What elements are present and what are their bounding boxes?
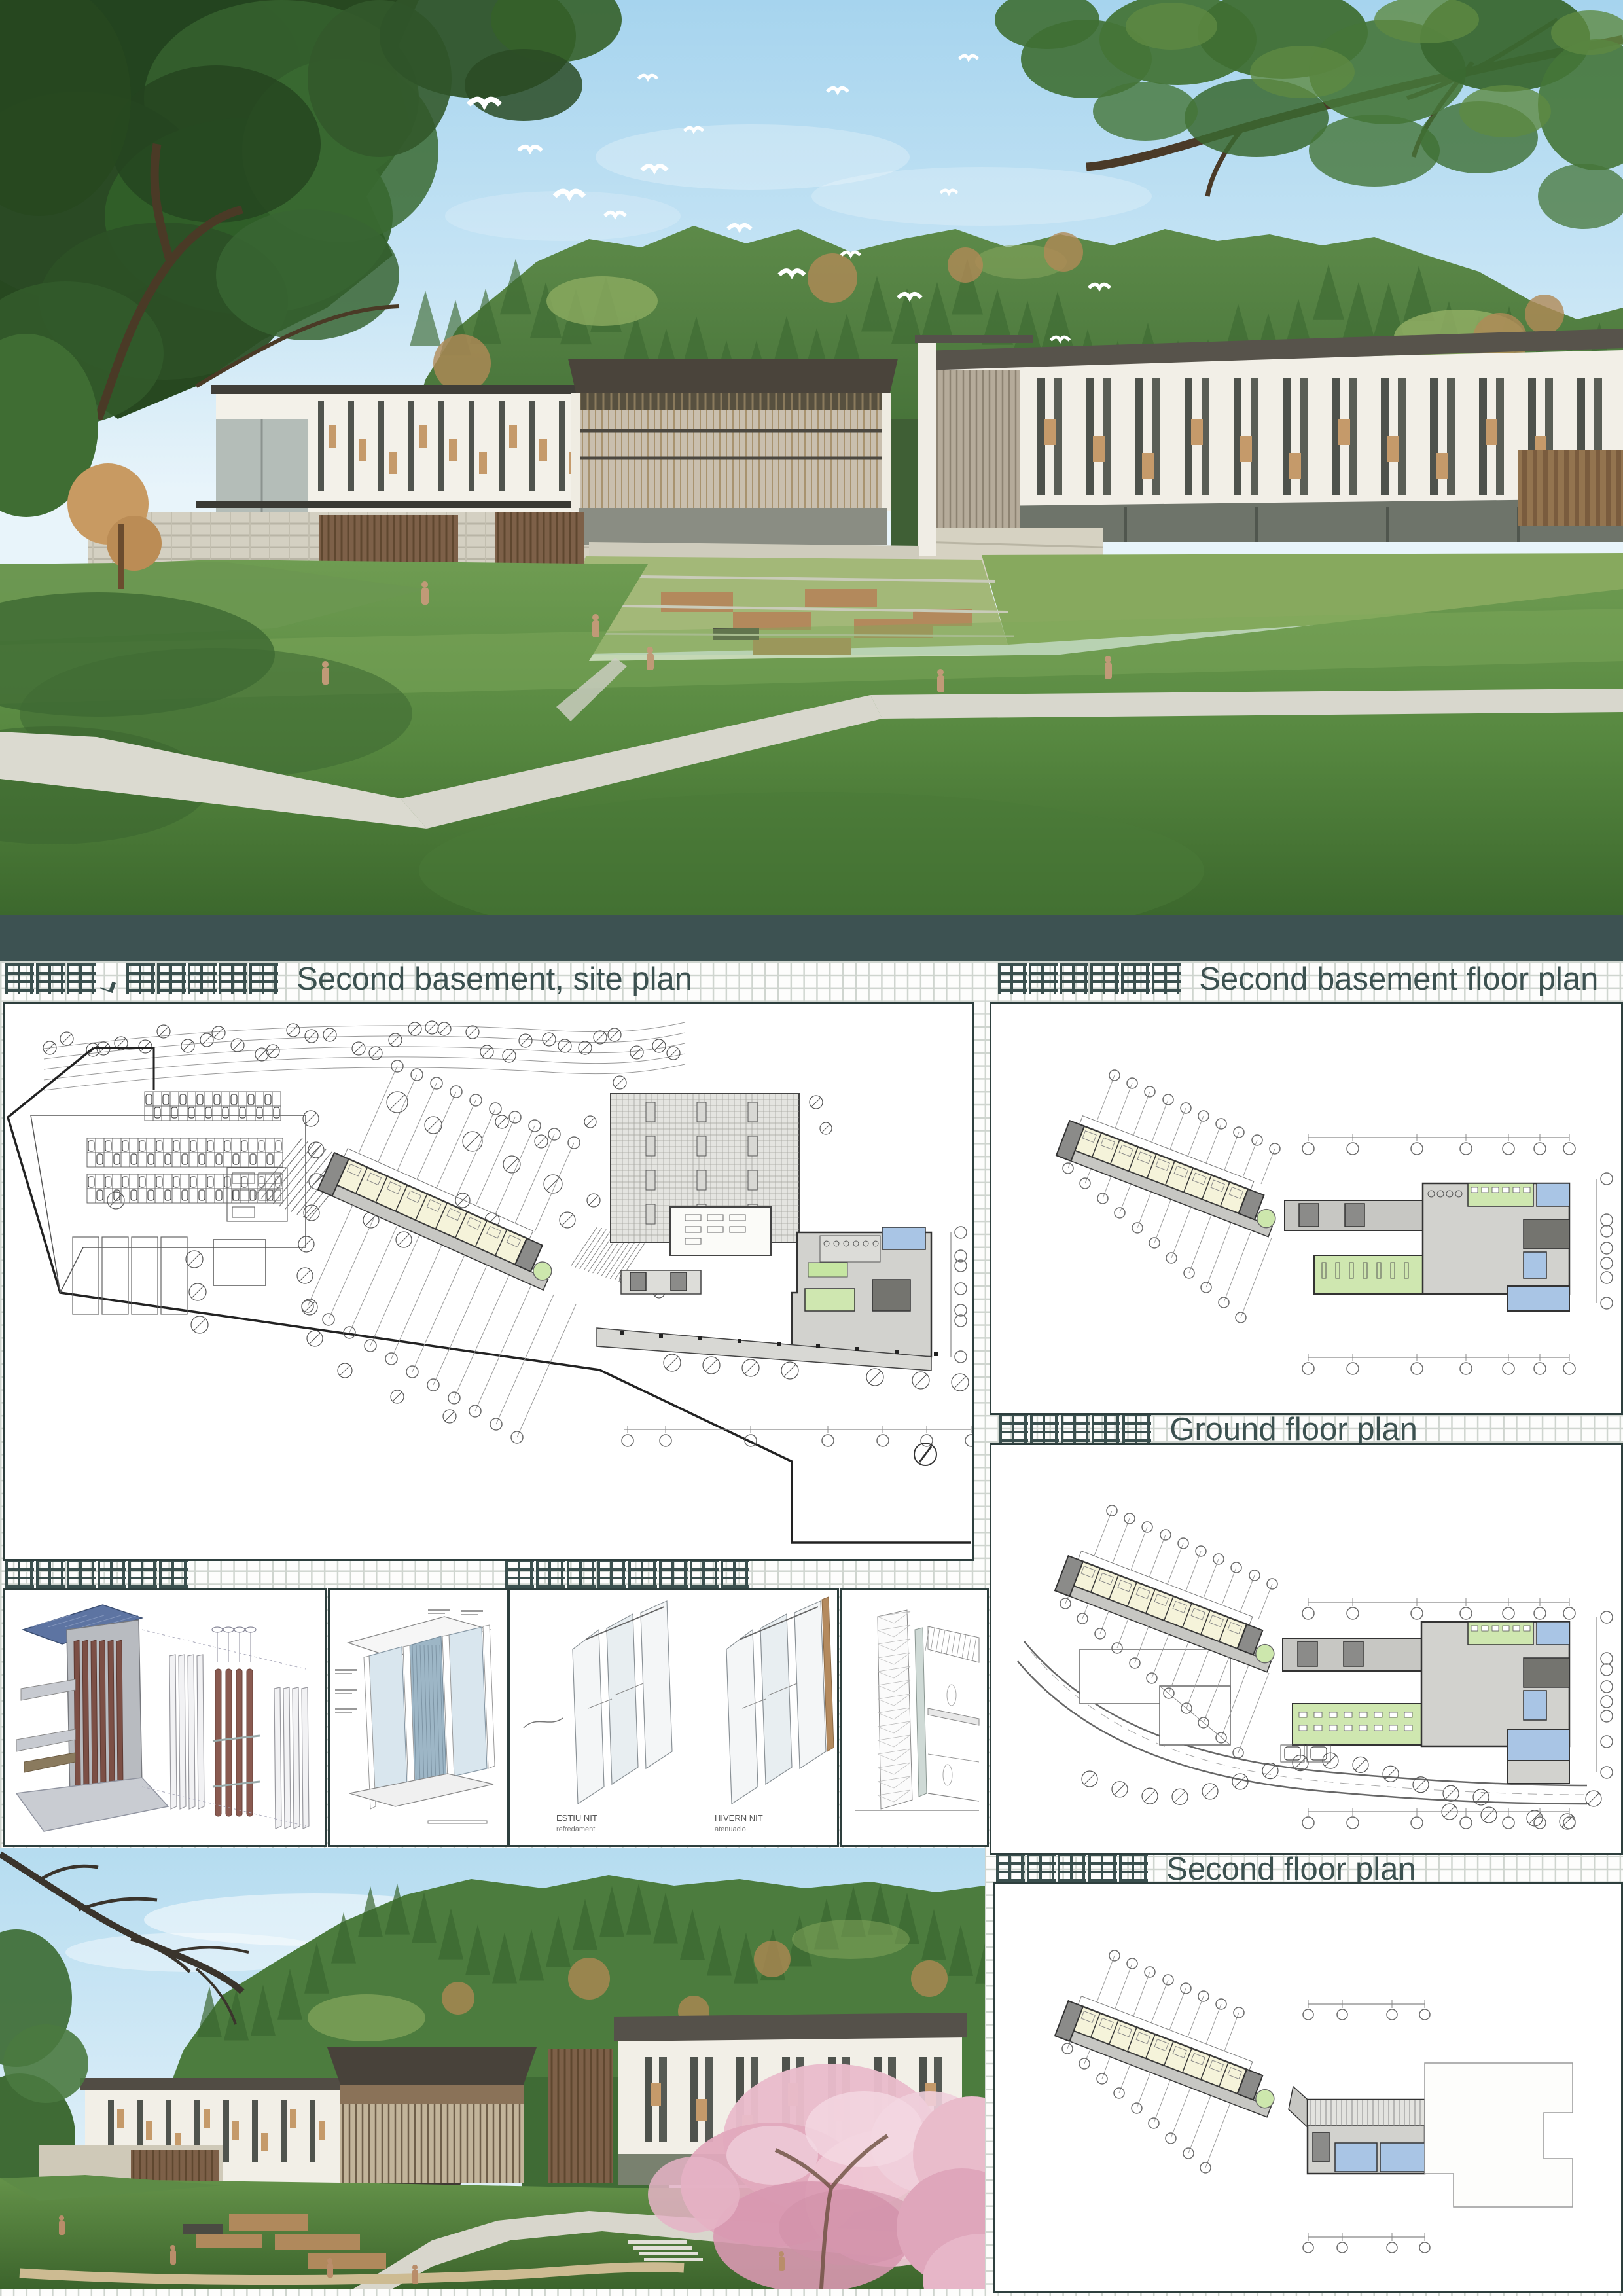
svg-text:refredament: refredament [556, 1825, 595, 1833]
svg-text:ESTIU NIT: ESTIU NIT [556, 1813, 597, 1823]
svg-text:HIVERN NIT: HIVERN NIT [715, 1813, 763, 1823]
svg-text:atenuacio: atenuacio [715, 1825, 746, 1833]
